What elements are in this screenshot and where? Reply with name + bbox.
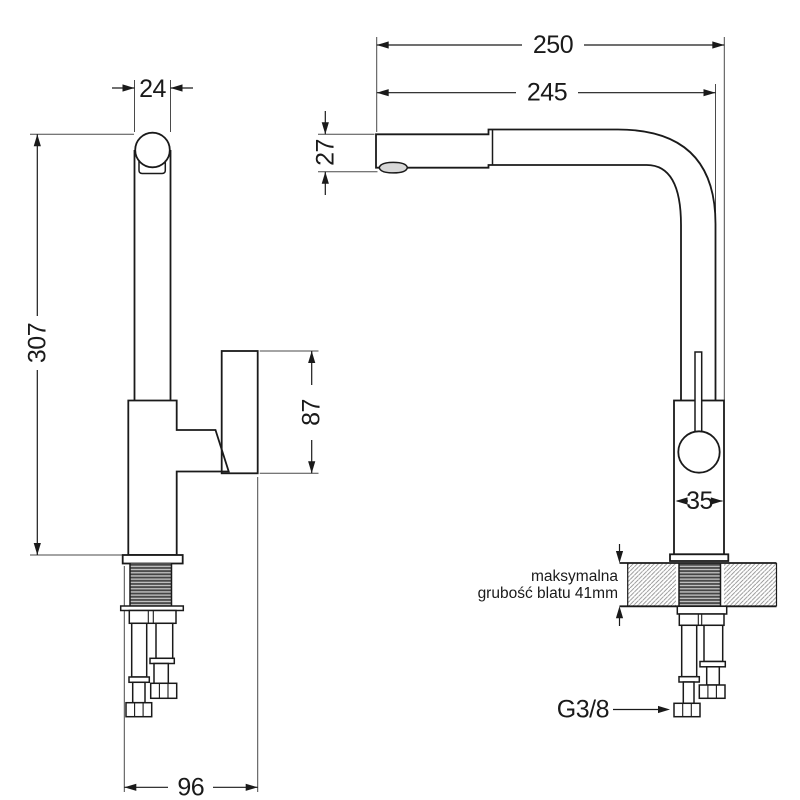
aerator-nozzle [379, 162, 407, 173]
mounting-thread-front [679, 564, 721, 606]
hose-tube [683, 682, 694, 703]
dim-label-spout-width: 24 [139, 75, 166, 103]
hose-tube [682, 625, 697, 676]
dim-label-handle-height: 87 [298, 399, 326, 426]
hose-end-nut [699, 685, 725, 698]
countertop-note-line1: maksymalna [531, 568, 618, 585]
locknut-washer-front [677, 606, 726, 614]
hose-tube [133, 682, 145, 702]
dim-label-body-width: 35 [686, 487, 713, 515]
base-flange-front [670, 554, 728, 561]
thread-spec-label: G3/8 [557, 696, 609, 724]
countertop-note-line2: grubość blatu 41mm [478, 585, 618, 602]
dim-label-total-height: 307 [23, 323, 51, 363]
faucet-technical-drawing: 24 307 87 96 [0, 0, 800, 800]
hose-end-nut [674, 703, 700, 716]
hose-tube [707, 667, 720, 685]
hose-end-nut [126, 703, 152, 717]
base-flange [123, 555, 183, 564]
countertop-hatch-right [724, 564, 777, 606]
hose-end-nut [151, 683, 177, 698]
dim-label-total-reach: 250 [533, 31, 573, 59]
countertop-hatch-left [628, 564, 676, 606]
hose-coupler [700, 662, 725, 667]
hose-tube [154, 664, 168, 684]
hose-coupler [150, 658, 174, 663]
hose-tube [156, 623, 173, 658]
mounting-thread [130, 564, 172, 607]
dim-label-spout-reach: 245 [527, 79, 567, 107]
handle-rod-fill [695, 352, 702, 431]
hose-connector-block [129, 611, 176, 624]
hose-coupler [679, 677, 699, 682]
hose-tube [704, 625, 723, 661]
dim-label-spout-height: 27 [311, 139, 339, 166]
hose-coupler [129, 677, 149, 682]
dim-label-base-depth: 96 [177, 773, 204, 800]
handle-knob [678, 431, 719, 472]
hose-tube [132, 623, 147, 677]
